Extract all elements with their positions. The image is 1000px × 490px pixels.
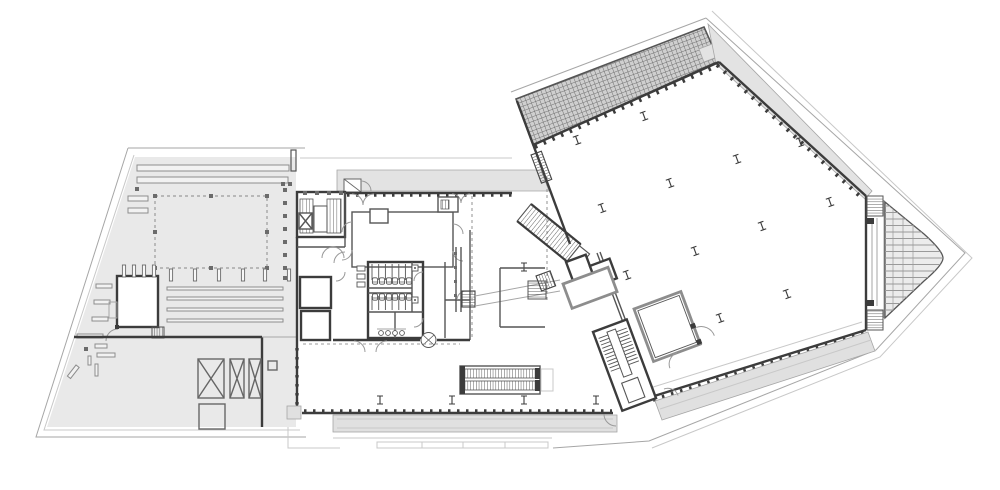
- plan-marker: [379, 294, 384, 300]
- north-facade: [345, 193, 512, 205]
- hall-south-room: [634, 286, 720, 373]
- plan-marker: [372, 278, 377, 284]
- skylight-grid-band: [516, 27, 719, 145]
- plan-marker: [122, 265, 125, 277]
- plan-marker: [152, 265, 155, 277]
- plan-marker: [283, 276, 287, 280]
- right-hall: [500, 24, 946, 420]
- plan-marker: [598, 203, 606, 213]
- plan-marker: [372, 294, 377, 300]
- plan-marker: [377, 396, 383, 404]
- plan-marker: [521, 263, 527, 271]
- plan-marker: [241, 269, 244, 281]
- plan-marker: [623, 270, 631, 280]
- plan-marker: [303, 191, 307, 195]
- plan-marker: [135, 187, 139, 191]
- plan-marker: [666, 178, 674, 188]
- plan-marker: [283, 188, 287, 192]
- plan-marker: [265, 230, 269, 234]
- plan-marker: [412, 265, 418, 271]
- plan-marker: [449, 396, 455, 404]
- plan-marker: [315, 191, 319, 195]
- plan-marker: [283, 201, 287, 205]
- plan-marker: [132, 265, 135, 277]
- plan-marker: [287, 269, 290, 281]
- wc-urinals: [412, 265, 418, 303]
- plan-marker: [783, 289, 791, 299]
- northeast-eave: [708, 24, 872, 199]
- plan-marker: [399, 294, 404, 300]
- plan-marker: [281, 182, 285, 186]
- floor-plan-page: [0, 0, 1000, 490]
- left-wing-planter-bars: [137, 150, 296, 183]
- east-rooms: [445, 230, 475, 340]
- plan-marker: [640, 111, 648, 121]
- east-deck-triangle: [880, 200, 946, 320]
- plan-marker: [691, 246, 699, 256]
- northwest-stair-core: [297, 191, 345, 237]
- plan-marker: [339, 191, 343, 195]
- large-room: [342, 197, 463, 267]
- plan-marker: [209, 266, 213, 270]
- middle-building: [287, 170, 617, 432]
- plan-marker: [169, 269, 172, 281]
- plan-marker: [217, 269, 220, 281]
- plan-marker: [379, 278, 384, 284]
- plan-marker: [209, 194, 213, 198]
- plan-marker: [573, 135, 581, 145]
- plan-marker: [758, 221, 766, 231]
- plan-marker: [393, 331, 398, 336]
- plan-marker: [283, 240, 287, 244]
- hall-column-grid: [573, 111, 834, 348]
- plan-marker: [283, 214, 287, 218]
- plan-marker: [265, 194, 269, 198]
- wc-sinks: [379, 331, 405, 336]
- plan-marker: [263, 269, 266, 281]
- plan-marker: [593, 396, 599, 404]
- plan-marker: [406, 294, 411, 300]
- plan-marker: [392, 278, 397, 284]
- escalator-pair: [460, 366, 553, 394]
- south-facade-and-canopy: [302, 411, 617, 432]
- plan-marker: [283, 266, 287, 270]
- junction-core: [500, 204, 617, 327]
- plan-marker: [386, 331, 391, 336]
- plan-marker: [153, 230, 157, 234]
- plan-marker: [399, 278, 404, 284]
- north-canopy: [337, 170, 549, 191]
- wc-block: [357, 262, 423, 338]
- plan-marker: [283, 253, 287, 257]
- plan-marker: [193, 269, 196, 281]
- plan-marker: [412, 297, 418, 303]
- plan-marker: [521, 396, 527, 404]
- floor-plan-drawing: [0, 0, 1000, 490]
- plan-marker: [327, 191, 331, 195]
- plan-marker: [283, 227, 287, 231]
- bridge-links: [475, 271, 560, 306]
- plan-marker: [392, 294, 397, 300]
- east-ramp-strip: [867, 196, 884, 330]
- plan-marker: [406, 278, 411, 284]
- plan-marker: [288, 182, 292, 186]
- plan-marker: [716, 313, 724, 323]
- plan-marker: [733, 154, 741, 164]
- plan-marker: [400, 331, 405, 336]
- left-wing-terrace: [47, 150, 296, 429]
- plan-marker: [379, 331, 384, 336]
- plan-marker: [386, 278, 391, 284]
- plan-marker: [142, 265, 145, 277]
- plan-marker: [826, 197, 834, 207]
- plan-marker: [153, 194, 157, 198]
- plan-marker: [386, 294, 391, 300]
